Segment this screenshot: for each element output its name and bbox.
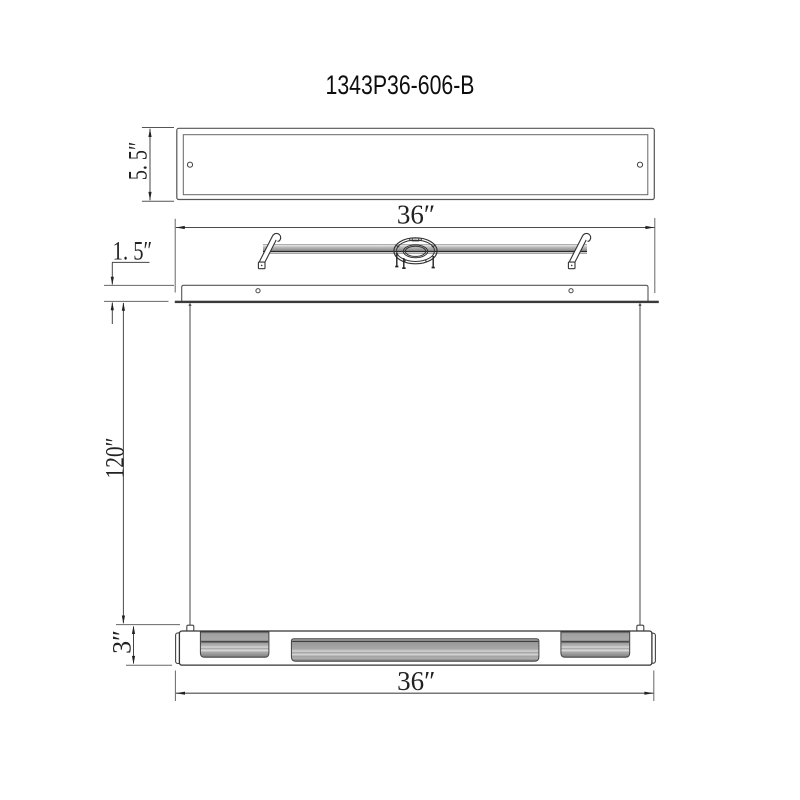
svg-text:5. 5″: 5. 5″ [124, 142, 153, 181]
svg-text:1343P36-606-B: 1343P36-606-B [326, 70, 475, 100]
svg-text:1. 5″: 1. 5″ [113, 237, 153, 266]
svg-text:120″: 120″ [101, 438, 130, 479]
svg-text:3″: 3″ [108, 630, 137, 654]
svg-text:36″: 36″ [397, 666, 435, 696]
svg-text:36″: 36″ [397, 200, 435, 230]
